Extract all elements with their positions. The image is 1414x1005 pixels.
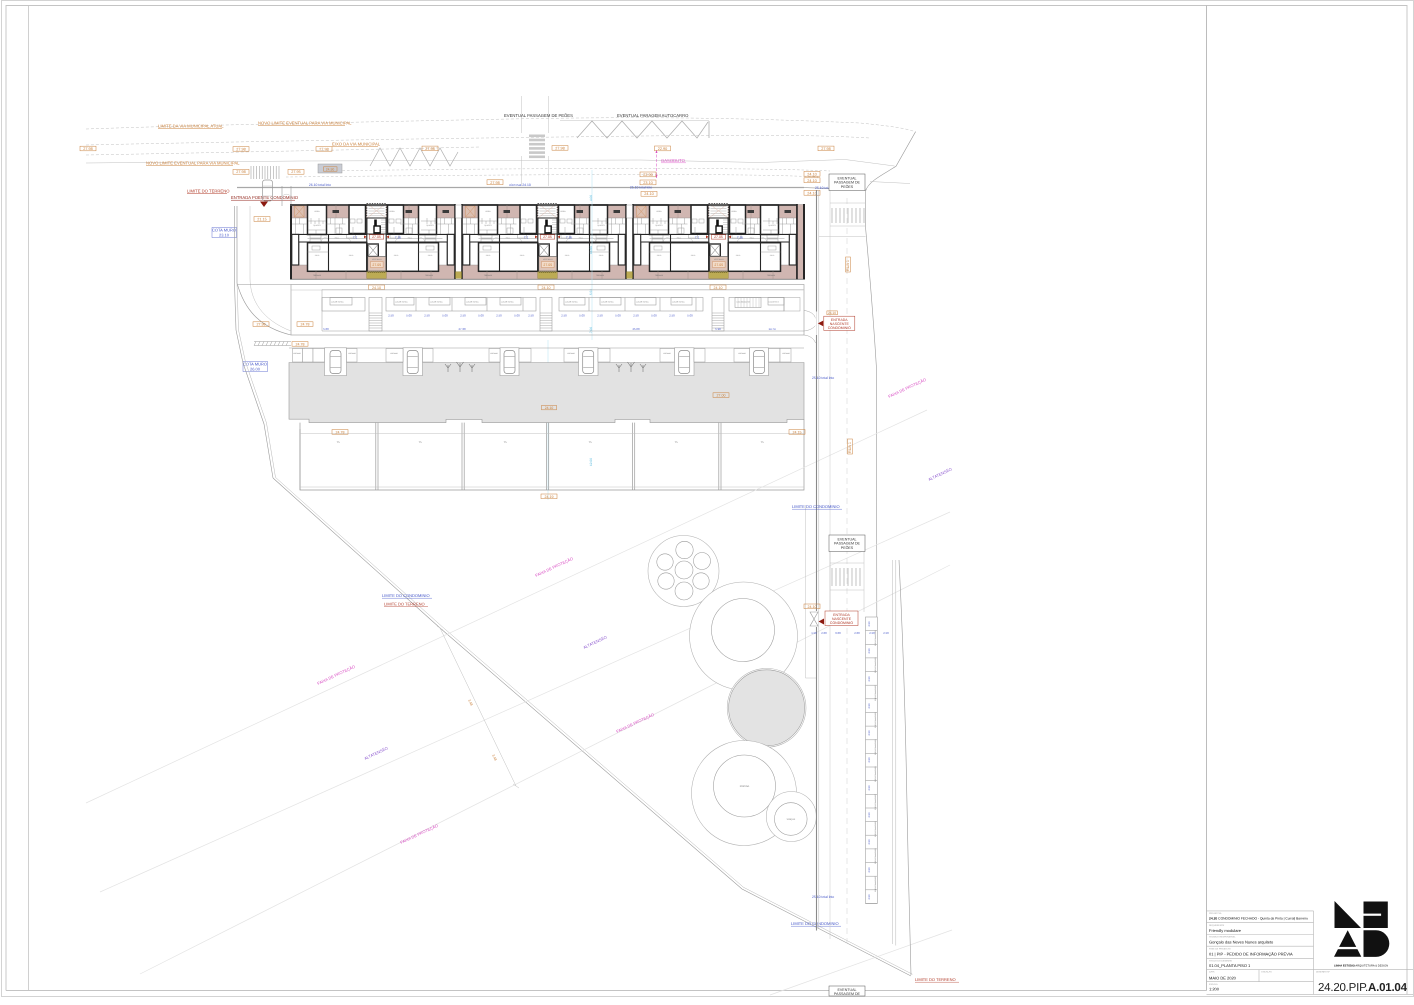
svg-text:LIMITE DO CONDOMINIO: LIMITE DO CONDOMINIO — [382, 593, 430, 598]
svg-text:FASE DE PROJECTO: FASE DE PROJECTO — [1209, 947, 1231, 950]
svg-text:26.10 total lote: 26.10 total lote — [309, 183, 331, 187]
svg-text:2.50: 2.50 — [868, 703, 871, 709]
svg-text:LUG.BICICLETA: LUG.BICICLETA — [737, 301, 751, 304]
svg-text:2.50: 2.50 — [883, 631, 889, 635]
svg-text:2.00: 2.00 — [821, 631, 827, 635]
svg-text:2.50: 2.50 — [868, 785, 871, 791]
svg-text:25.10 total lote: 25.10 total lote — [812, 895, 834, 899]
svg-text:DESENHO Nº: DESENHO Nº — [1316, 971, 1330, 974]
svg-text:24.10: 24.10 — [372, 286, 381, 290]
svg-text:PROJETO/A: PROJETO/A — [1209, 912, 1222, 915]
svg-text:MAIO DE 2020: MAIO DE 2020 — [1209, 976, 1237, 981]
svg-text:PEÕES: PEÕES — [841, 545, 854, 550]
svg-text:LUGAR ESTAC.: LUGAR ESTAC. — [565, 301, 579, 304]
svg-text:TECNICO RESPONSAVEL: TECNICO RESPONSAVEL — [1209, 936, 1236, 939]
svg-text:LUGAR ESTAC.: LUGAR ESTAC. — [601, 301, 615, 304]
svg-text:25.10 total lote: 25.10 total lote — [630, 186, 652, 190]
svg-text:ESTACIONAMENTO: ESTACIONAMENTO — [874, 765, 877, 781]
svg-text:2.50: 2.50 — [868, 730, 871, 736]
svg-text:24.10: 24.10 — [644, 192, 654, 196]
svg-text:12.00: 12.00 — [589, 458, 593, 466]
svg-text:LUGAR ESTAC.: LUGAR ESTAC. — [636, 301, 650, 304]
svg-text:2.50: 2.50 — [868, 676, 871, 682]
svg-text:eixo rua 24.10: eixo rua 24.10 — [509, 183, 531, 187]
svg-text:27.95: 27.95 — [291, 170, 301, 174]
svg-text:24.20.PIP.A.01.04: 24.20.PIP.A.01.04 — [1318, 982, 1408, 994]
svg-text:2.50: 2.50 — [528, 314, 534, 318]
svg-text:ARRUMO: ARRUMO — [293, 352, 301, 355]
svg-text:LUGAR ESTAC.: LUGAR ESTAC. — [501, 301, 515, 304]
svg-text:2.50: 2.50 — [868, 648, 871, 654]
svg-text:RUA 1: RUA 1 — [848, 442, 852, 453]
svg-text:01.04_PLANTA PISO 1: 01.04_PLANTA PISO 1 — [1209, 963, 1251, 968]
svg-text:2.50: 2.50 — [868, 621, 871, 627]
svg-text:ESTACIONAMENTO: ESTACIONAMENTO — [874, 656, 877, 672]
svg-text:ESTACIONAMENTO: ESTACIONAMENTO — [874, 711, 877, 727]
svg-text:PISCINA: PISCINA — [740, 785, 750, 788]
svg-text:EIXO DA VIA MUNICIPAL: EIXO DA VIA MUNICIPAL — [332, 142, 381, 147]
svg-text:24.78: 24.78 — [296, 342, 305, 346]
svg-text:ESTACIONAMENTO: ESTACIONAMENTO — [874, 684, 877, 700]
svg-text:25.10 total lote: 25.10 total lote — [812, 376, 834, 380]
svg-text:2.50: 2.50 — [597, 314, 603, 318]
svg-text:LIMITE DO CONDOMINIO: LIMITE DO CONDOMINIO — [791, 921, 839, 926]
svg-text:2.50: 2.50 — [496, 314, 502, 318]
svg-text:24.20 CONDOMINIO FECHADO - Qui: 24.20 CONDOMINIO FECHADO - Quinta da Pin… — [1209, 917, 1308, 921]
svg-text:27.98: 27.98 — [83, 147, 93, 151]
svg-text:LIMITE DA VIA MUNICIPAL ATUAL: LIMITE DA VIA MUNICIPAL ATUAL — [158, 124, 224, 129]
svg-text:ESTACIONAMENTO: ESTACIONAMENTO — [874, 847, 877, 863]
svg-text:24.15: 24.15 — [793, 430, 802, 434]
svg-text:LIMITE DO TERRENO: LIMITE DO TERRENO — [915, 977, 956, 982]
svg-text:Friendly modulare: Friendly modulare — [1209, 928, 1242, 933]
svg-text:RUA 1: RUA 1 — [846, 260, 850, 271]
svg-text:EVENTUAL PASSAGEM DE PEÕES: EVENTUAL PASSAGEM DE PEÕES — [504, 113, 573, 118]
svg-text:27.98: 27.98 — [319, 147, 329, 151]
svg-text:1:200: 1:200 — [1209, 987, 1220, 992]
svg-text:2.50: 2.50 — [868, 812, 871, 818]
svg-text:2.50: 2.50 — [460, 314, 466, 318]
svg-text:21.15: 21.15 — [257, 218, 267, 222]
svg-text:24.10: 24.10 — [828, 311, 836, 315]
svg-text:2.50: 2.50 — [424, 314, 430, 318]
svg-text:ESCALAS: ESCALAS — [1262, 971, 1273, 974]
svg-text:NOVO LIMITE EVENTUAL PARA VIA: NOVO LIMITE EVENTUAL PARA VIA MUNICIPAL — [258, 121, 352, 126]
svg-text:PASSAGEM DE: PASSAGEM DE — [834, 992, 860, 996]
svg-text:LUGAR ESTAC.: LUGAR ESTAC. — [331, 301, 345, 304]
svg-text:LUGAR ESTAC.: LUGAR ESTAC. — [466, 301, 480, 304]
svg-text:24.10: 24.10 — [807, 172, 817, 176]
svg-text:22.90: 22.90 — [658, 147, 668, 151]
svg-text:CONDOMINIO: CONDOMINIO — [830, 621, 853, 625]
svg-text:27.98: 27.98 — [257, 323, 266, 327]
svg-text:5.00: 5.00 — [406, 314, 412, 318]
svg-text:ESTACIONAMENTO: ESTACIONAMENTO — [874, 793, 877, 809]
svg-text:ARRUMO: ARRUMO — [490, 352, 498, 355]
svg-text:GASODUTO: GASODUTO — [661, 158, 686, 163]
svg-text:5.00: 5.00 — [478, 314, 484, 318]
svg-text:2.50: 2.50 — [868, 867, 871, 873]
svg-text:NOVO LIMITE EVENTUAL PARA VIA: NOVO LIMITE EVENTUAL PARA VIA MUNICIPAL — [146, 161, 240, 166]
svg-text:2.50: 2.50 — [869, 631, 875, 635]
svg-text:27.98: 27.98 — [425, 147, 435, 151]
svg-text:14.74: 14.74 — [769, 327, 776, 331]
svg-text:2.00: 2.00 — [854, 631, 860, 635]
svg-text:ESTACIONAMENTO: ESTACIONAMENTO — [874, 738, 877, 754]
svg-text:TITULO DO DESENHO: TITULO DO DESENHO — [1209, 959, 1232, 962]
svg-text:TANQUE: TANQUE — [786, 818, 795, 821]
svg-text:ESCALA: ESCALA — [1209, 983, 1218, 986]
svg-text:5.00: 5.00 — [687, 314, 693, 318]
svg-text:ARRUMO: ARRUMO — [567, 352, 575, 355]
svg-text:01 | PIP - PEDIDO DE INFORMAÇÃ: 01 | PIP - PEDIDO DE INFORMAÇÃO PRÉVIA — [1209, 951, 1293, 956]
svg-text:27.98: 27.98 — [236, 147, 246, 151]
svg-text:ESTACIONAMENTO: ESTACIONAMENTO — [874, 875, 877, 891]
svg-text:24.78: 24.78 — [336, 430, 345, 434]
svg-text:24.10: 24.10 — [714, 286, 723, 290]
svg-text:5.00: 5.00 — [651, 314, 657, 318]
svg-text:4.00: 4.00 — [589, 195, 593, 201]
svg-text:ESTACIONAMENTO: ESTACIONAMENTO — [874, 820, 877, 836]
svg-text:LUGAR ESTAC.: LUGAR ESTAC. — [672, 301, 686, 304]
svg-text:26.00: 26.00 — [250, 367, 261, 372]
svg-text:5.00: 5.00 — [323, 327, 329, 331]
svg-text:REQUERENTE: REQUERENTE — [1209, 924, 1225, 927]
svg-text:5.98: 5.98 — [715, 327, 721, 331]
svg-text:23.10: 23.10 — [219, 233, 230, 238]
svg-text:LUGAR ESTAC.: LUGAR ESTAC. — [430, 301, 444, 304]
svg-text:7.00: 7.00 — [589, 327, 593, 333]
svg-text:ARRUMO: ARRUMO — [738, 352, 746, 355]
svg-text:27.98: 27.98 — [555, 146, 565, 150]
svg-text:LINHA ESTÚDIO ARQUITETURA & DE: LINHA ESTÚDIO ARQUITETURA & DESIGN — [1334, 964, 1388, 968]
svg-text:23.10: 23.10 — [643, 181, 653, 185]
svg-text:ARRUMO: ARRUMO — [782, 352, 790, 355]
svg-text:LUGAR EST.: LUGAR EST. — [769, 301, 780, 304]
svg-text:1.50: 1.50 — [811, 631, 817, 635]
svg-text:ARRUMO: ARRUMO — [348, 352, 356, 355]
svg-text:27.98: 27.98 — [236, 170, 246, 174]
svg-text:5.00: 5.00 — [442, 314, 448, 318]
svg-text:LIMITE DO TERRENO: LIMITE DO TERRENO — [187, 189, 230, 194]
svg-text:27.98: 27.98 — [821, 147, 831, 151]
svg-text:24.10: 24.10 — [545, 406, 554, 410]
svg-text:24.19: 24.19 — [545, 495, 554, 499]
svg-text:5.00: 5.00 — [615, 314, 621, 318]
svg-text:DATA: DATA — [1209, 971, 1215, 974]
svg-text:ARRUMO: ARRUMO — [390, 352, 398, 355]
svg-text:2.50: 2.50 — [561, 314, 567, 318]
svg-text:2.50: 2.50 — [868, 757, 871, 763]
svg-text:27.00: 27.00 — [717, 394, 726, 398]
svg-text:CONDOMINIO: CONDOMINIO — [828, 326, 851, 330]
svg-text:2.50: 2.50 — [669, 314, 675, 318]
svg-text:Gonçalo das Neves Nunes arquit: Gonçalo das Neves Nunes arquiteto — [1209, 940, 1274, 945]
svg-text:14.60: 14.60 — [589, 246, 593, 254]
svg-text:6.00: 6.00 — [835, 631, 841, 635]
svg-text:5.00: 5.00 — [579, 314, 585, 318]
svg-text:2.50: 2.50 — [388, 314, 394, 318]
svg-text:LIMITE DO TERRENO: LIMITE DO TERRENO — [384, 602, 425, 607]
svg-text:LIMITE DO CONDOMINIO: LIMITE DO CONDOMINIO — [792, 504, 840, 509]
svg-text:22.90: 22.90 — [643, 173, 653, 177]
svg-text:LUGAR ESTAC.: LUGAR ESTAC. — [395, 301, 409, 304]
svg-text:ARRUMO: ARRUMO — [663, 352, 671, 355]
svg-text:EVENTUAL PARAGEM AUTOCARRO: EVENTUAL PARAGEM AUTOCARRO — [617, 113, 689, 118]
svg-text:24.10: 24.10 — [808, 605, 817, 609]
svg-text:2.50: 2.50 — [868, 839, 871, 845]
svg-text:24.10: 24.10 — [542, 286, 551, 290]
svg-text:27.98: 27.98 — [490, 181, 500, 185]
svg-text:25.00: 25.00 — [633, 327, 640, 331]
svg-text:2.50: 2.50 — [868, 894, 871, 900]
svg-text:PEÕES: PEÕES — [841, 184, 854, 189]
svg-text:24.10: 24.10 — [807, 191, 817, 195]
svg-text:5.00: 5.00 — [514, 314, 520, 318]
svg-text:2.50: 2.50 — [633, 314, 639, 318]
svg-text:27.30: 27.30 — [459, 327, 466, 331]
svg-text:24.10: 24.10 — [807, 179, 817, 183]
svg-text:24.78: 24.78 — [301, 323, 310, 327]
